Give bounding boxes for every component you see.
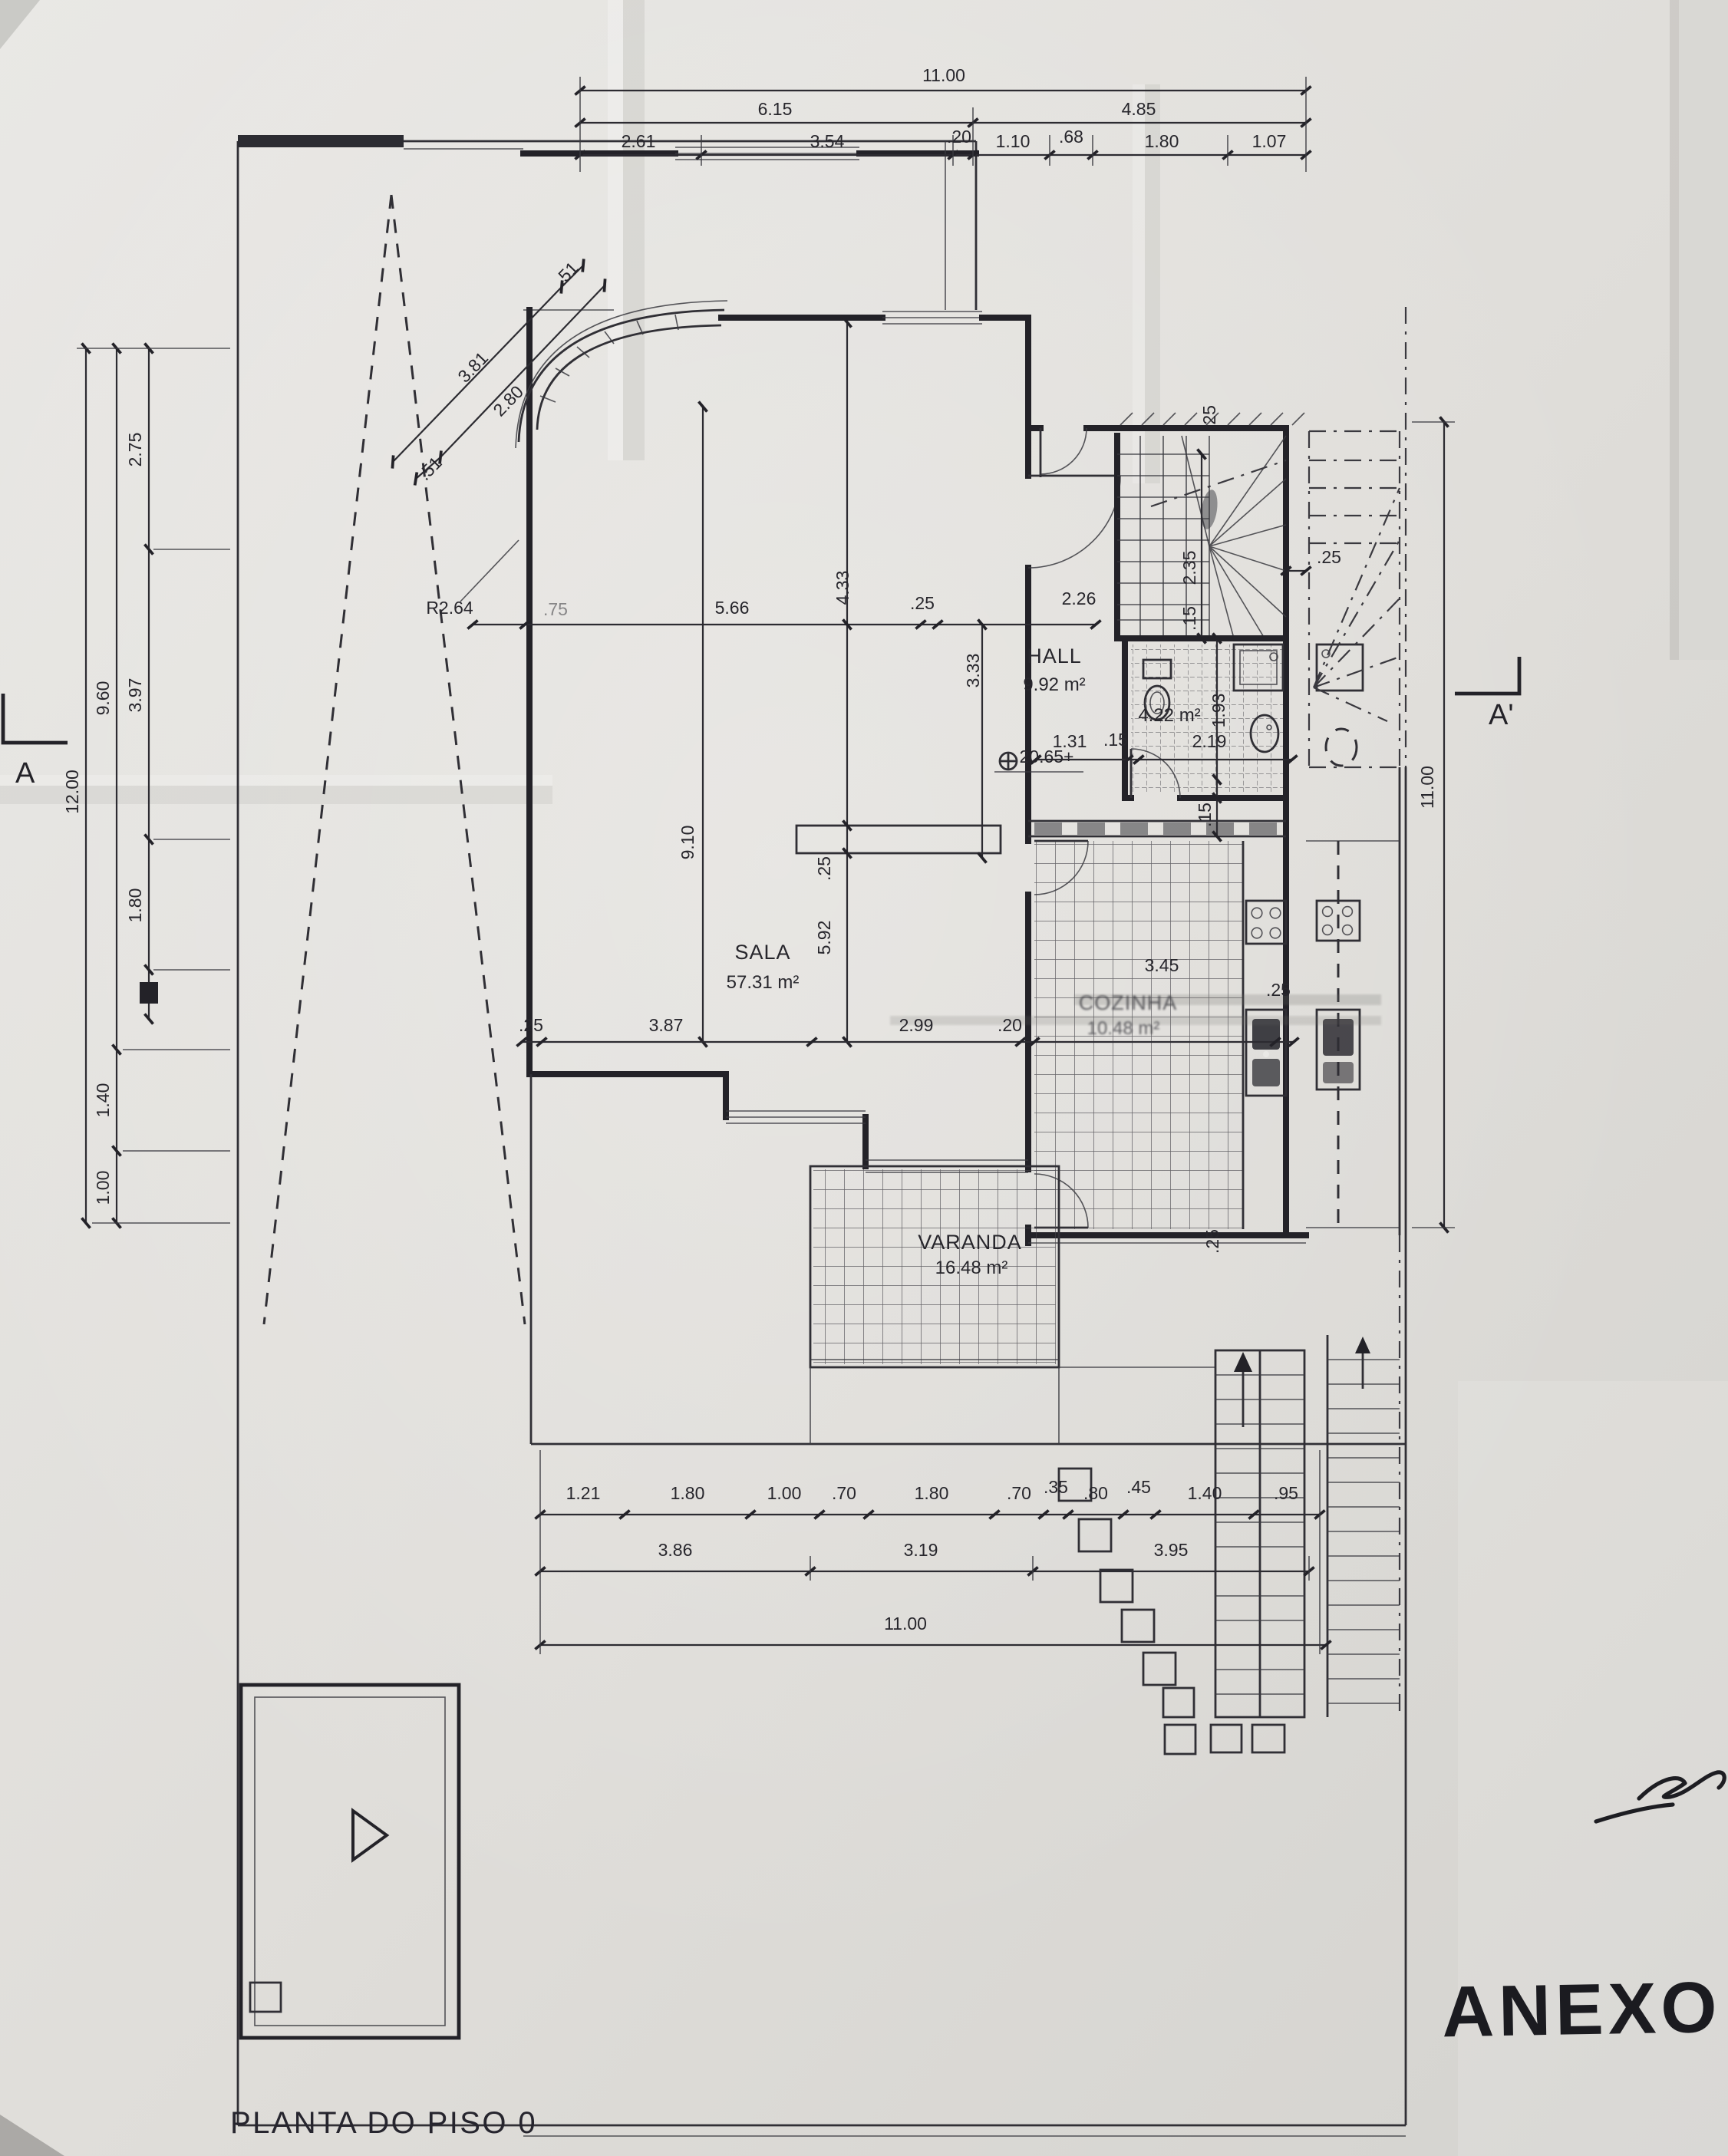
dim-label: 2.99 (899, 1015, 934, 1035)
dim-label: 12.00 (62, 770, 82, 814)
scanned-floor-plan-photo: 11.00 6.15 4.85 2.61 3.54 .20 1.10 .68 1… (0, 0, 1728, 2156)
dim-label: .80 (1083, 1483, 1108, 1503)
section-label-a-prime: A' (1489, 699, 1514, 731)
dim-label: 2.35 (1179, 551, 1199, 585)
dim-label: 4.85 (1122, 99, 1156, 119)
dim-label: 11.00 (922, 65, 965, 85)
dim-label: 5.92 (814, 921, 834, 955)
dim-label: 1.93 (1209, 694, 1228, 728)
dim-label: 4.33 (833, 571, 852, 605)
dim-label: 9.60 (93, 681, 113, 716)
dim-label: 1.80 (671, 1483, 705, 1503)
dim-label: 1.40 (93, 1083, 113, 1118)
room-area-hall: 9.92 m² (1023, 674, 1085, 695)
dim-label: 1.00 (93, 1171, 113, 1205)
room-area-varanda: 16.48 m² (935, 1258, 1008, 1278)
dim-label: 3.97 (125, 678, 145, 713)
room-label-hall: HALL (1027, 644, 1082, 668)
room-area-cozinha: 10.48 m² (1087, 1018, 1160, 1039)
dim-label: .25 (1266, 980, 1291, 1000)
ink-blot (140, 982, 158, 1004)
dim-label: 3.33 (963, 654, 983, 688)
dim-label: 1.40 (1188, 1483, 1222, 1503)
dim-label: .35 (1044, 1477, 1068, 1497)
room-label-varanda: VARANDA (918, 1231, 1022, 1254)
dim-label: .70 (832, 1483, 856, 1503)
dim-label: 1.00 (767, 1483, 802, 1503)
dim-label: 11.00 (884, 1614, 927, 1633)
dim-label: 6.15 (758, 99, 793, 119)
dim-label: 5.66 (715, 598, 750, 618)
dim-label: .25 (910, 593, 935, 613)
section-label-a: A (15, 757, 35, 790)
dim-label: .25 (1202, 1229, 1222, 1254)
dim-label: .75 (543, 599, 568, 619)
dim-label: .15 (1179, 606, 1199, 631)
dim-label: 1.80 (1145, 131, 1179, 151)
dim-label: 1.10 (996, 131, 1031, 151)
dim-label: 3.54 (810, 131, 845, 151)
dim-label: .25 (1317, 547, 1341, 567)
dim-label: .25 (814, 856, 834, 881)
dim-label: 2.75 (125, 433, 145, 467)
dim-label: .25 (519, 1015, 543, 1035)
dim-label: .70 (1007, 1483, 1031, 1503)
radius-label: R2.64 (426, 598, 473, 618)
dim-label: 1.21 (566, 1483, 601, 1503)
dim-label: .20 (947, 127, 971, 147)
dim-label: 2.26 (1062, 588, 1096, 608)
dim-label: 1.31 (1053, 731, 1087, 751)
paper-edge-shadow (1670, 0, 1679, 660)
floor-plan-drawing: 11.00 6.15 4.85 2.61 3.54 .20 1.10 .68 1… (0, 0, 1728, 2156)
dim-label: .95 (1274, 1483, 1298, 1503)
wall-filled (238, 135, 404, 147)
dim-label: 11.00 (1417, 766, 1437, 809)
dim-label: 2.19 (1192, 731, 1227, 751)
dim-label: 3.45 (1145, 955, 1179, 975)
dim-label: .25 (1199, 405, 1219, 430)
dim-label: 1.07 (1252, 131, 1287, 151)
dim-label: 3.19 (904, 1540, 938, 1560)
paper-background (0, 0, 1728, 2156)
dim-label: 1.80 (915, 1483, 949, 1503)
fold-crease-highlight (608, 0, 623, 460)
room-label-cozinha: COZINHA (1079, 991, 1178, 1014)
room-area-sala: 57.31 m² (727, 972, 800, 993)
handwritten-anexo-note: ANEXO (1441, 1966, 1722, 2052)
dim-label: 1.80 (125, 888, 145, 923)
room-area-wc: 4.22 m² (1138, 705, 1200, 726)
dim-label: 3.95 (1154, 1540, 1189, 1560)
dim-label: 3.87 (649, 1015, 684, 1035)
dim-label: 2.61 (622, 131, 656, 151)
dim-label: 3.86 (658, 1540, 693, 1560)
room-label-sala: SALA (734, 941, 790, 964)
dim-label: 9.10 (678, 826, 697, 860)
drawing-title: PLANTA DO PISO 0 (230, 2106, 537, 2140)
dim-label: .15 (1103, 730, 1128, 750)
dim-label: .68 (1059, 127, 1083, 147)
dim-label: .45 (1126, 1477, 1151, 1497)
dim-label: .20 (998, 1015, 1022, 1035)
dim-label: .15 (1195, 803, 1215, 827)
